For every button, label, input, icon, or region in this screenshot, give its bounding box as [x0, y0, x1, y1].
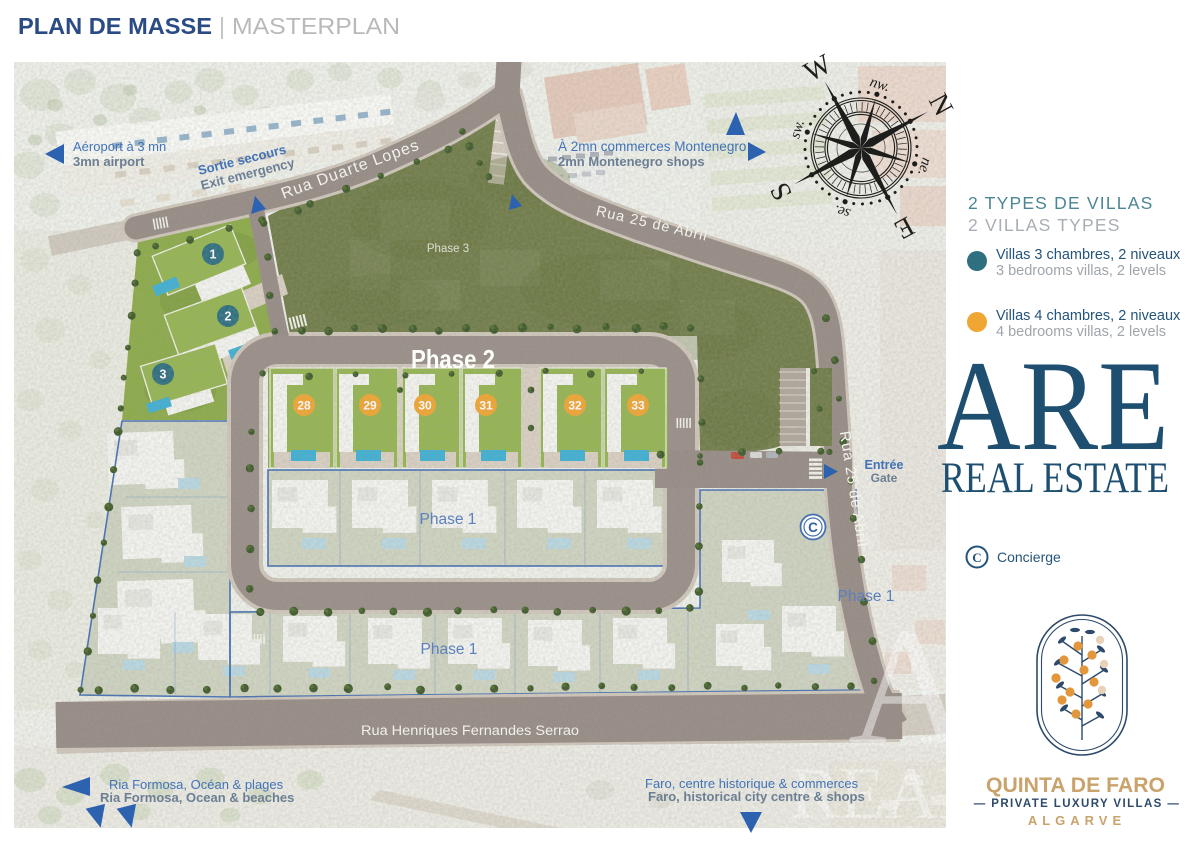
svg-text:2 TYPES DE VILLAS: 2 TYPES DE VILLAS	[968, 193, 1153, 213]
svg-text:|: |	[219, 13, 225, 39]
svg-text:2 VILLAS TYPES: 2 VILLAS TYPES	[968, 215, 1121, 235]
svg-text:Phase 1: Phase 1	[838, 588, 895, 605]
svg-text:3 bedrooms villas, 2 levels: 3 bedrooms villas, 2 levels	[996, 263, 1166, 279]
svg-text:QUINTA DE FARO: QUINTA DE FARO	[986, 774, 1165, 797]
svg-text:2mn Montenegro shops: 2mn Montenegro shops	[558, 154, 705, 169]
svg-text:Rua Henriques Fernandes Serrao: Rua Henriques Fernandes Serrao	[361, 723, 579, 738]
svg-text:Phase 1: Phase 1	[420, 511, 477, 528]
svg-text:ALGARVE: ALGARVE	[1028, 813, 1126, 828]
svg-text:Ria Formosa, Ocean & beaches: Ria Formosa, Ocean & beaches	[100, 790, 294, 805]
svg-text:— PRIVATE LUXURY VILLAS —: — PRIVATE LUXURY VILLAS —	[974, 798, 1180, 810]
svg-text:C: C	[972, 550, 981, 565]
svg-text:Phase 2: Phase 2	[411, 344, 495, 374]
svg-text:REAL ESTATE: REAL ESTATE	[941, 455, 1169, 502]
svg-text:Phase 1: Phase 1	[421, 641, 478, 658]
svg-text:Entrée: Entrée	[865, 458, 904, 472]
svg-text:MASTERPLAN: MASTERPLAN	[232, 13, 400, 39]
svg-text:PLAN DE MASSE: PLAN DE MASSE	[18, 13, 212, 39]
svg-text:C: C	[808, 520, 818, 535]
svg-text:3mn airport: 3mn airport	[73, 154, 145, 169]
svg-text:Villas 4 chambres, 2 niveaux: Villas 4 chambres, 2 niveaux	[996, 308, 1181, 324]
svg-text:Concierge: Concierge	[997, 549, 1061, 565]
svg-text:Faro, historical city centre &: Faro, historical city centre & shops	[648, 789, 865, 804]
svg-text:Gate: Gate	[871, 471, 898, 485]
svg-text:Aéroport à 3 mn: Aéroport à 3 mn	[73, 139, 166, 154]
svg-text:À 2mn commerces Montenegro: À 2mn commerces Montenegro	[558, 139, 746, 154]
svg-text:Villas 3 chambres, 2 niveaux: Villas 3 chambres, 2 niveaux	[996, 247, 1181, 263]
